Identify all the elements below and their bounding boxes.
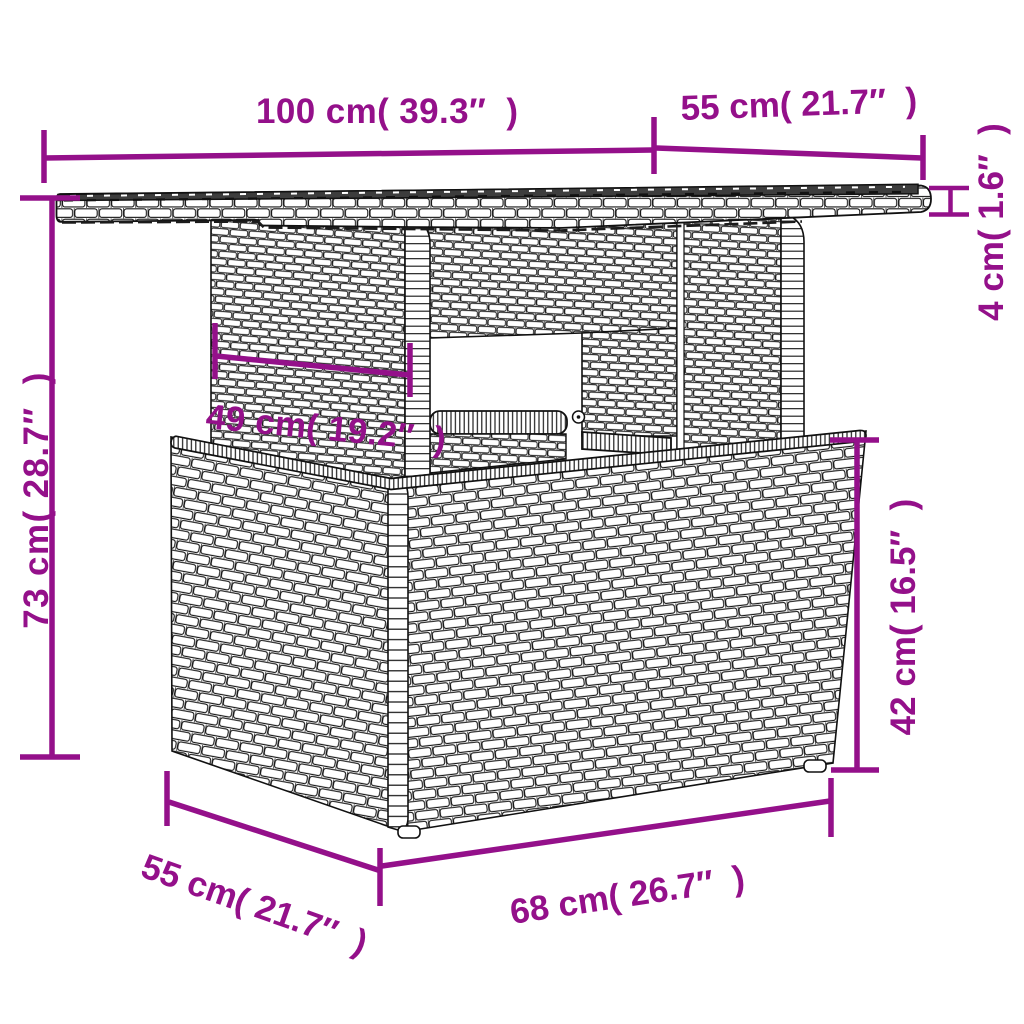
svg-text:55 cm( 21.7″ ): 55 cm( 21.7″ ) — [680, 81, 918, 128]
svg-text:42 cm( 16.5″ ): 42 cm( 16.5″ ) — [884, 499, 923, 736]
svg-text:4 cm( 1.6″ ): 4 cm( 1.6″ ) — [972, 123, 1011, 321]
svg-text:73 cm( 28.7″ ): 73 cm( 28.7″ ) — [17, 371, 56, 629]
svg-text:100 cm( 39.3″ ): 100 cm( 39.3″ ) — [256, 92, 518, 131]
